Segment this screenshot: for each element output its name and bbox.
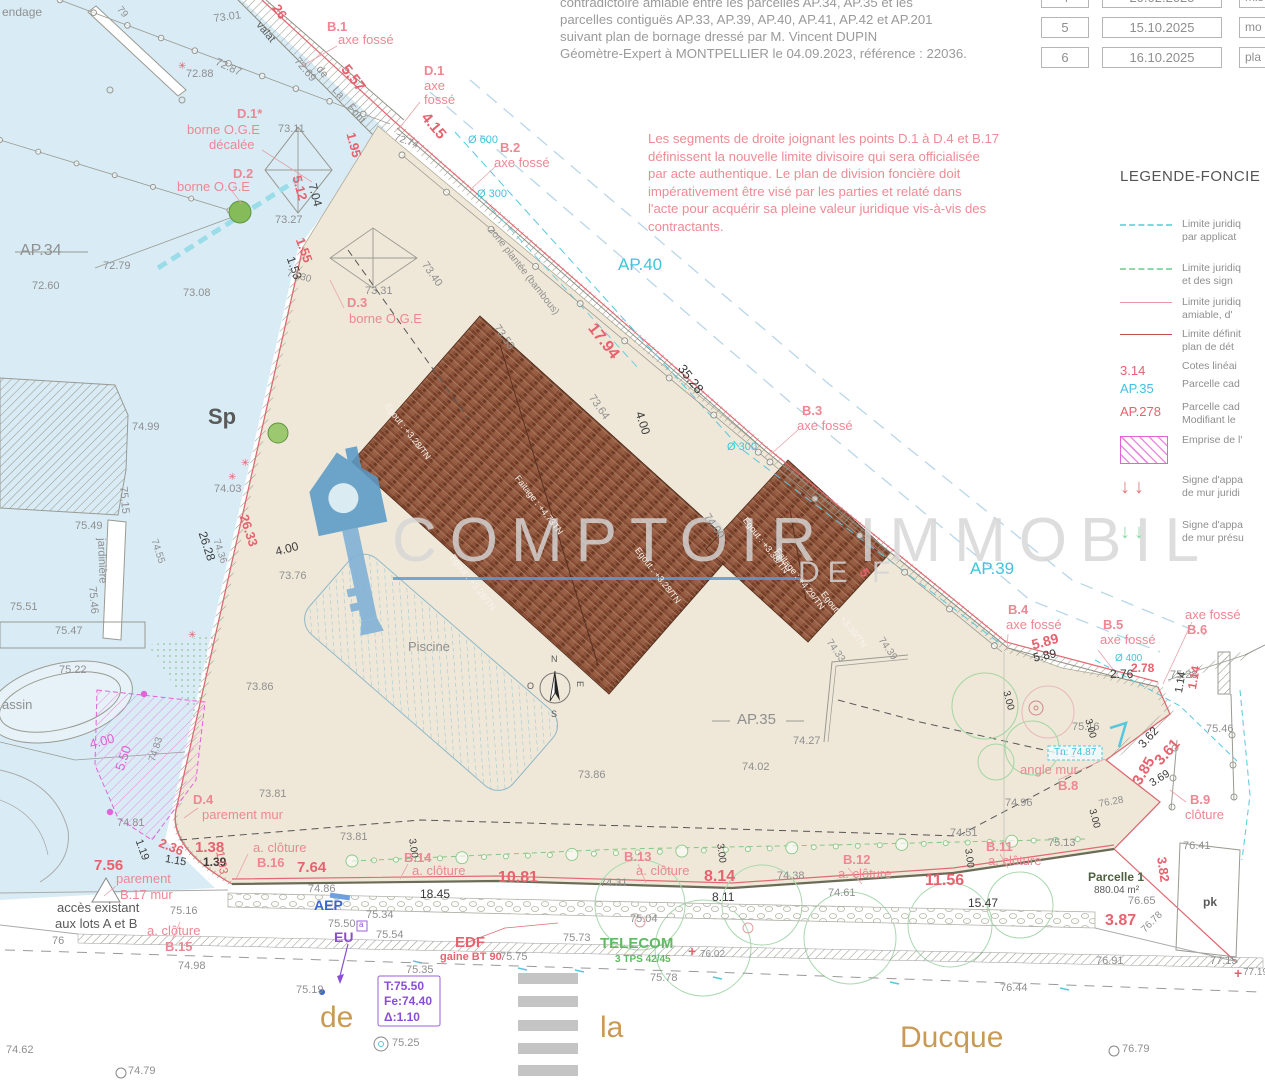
legend-entry: Emprise de l': [1120, 434, 1265, 464]
crosswalk: [518, 973, 578, 1076]
legend-text: Emprise de l': [1182, 434, 1242, 464]
legend-title: LEGENDE-FONCIE: [1120, 168, 1265, 185]
legend-entry: 3.14Cotes linéai: [1120, 360, 1265, 380]
survey-plan: COMPTOIR IMMOBIL DE F endage26B.1axe fos…: [0, 0, 1265, 1080]
legend-entry: Limite juridiq amiable, d': [1120, 296, 1265, 322]
revision-number: 5: [1041, 17, 1089, 38]
watermark-subtext: DE F: [798, 556, 898, 590]
revision-date: 16.10.2025: [1102, 47, 1222, 68]
revision-date: 15.10.2025: [1102, 17, 1222, 38]
legend-text: Signe d'appa de mur juridi: [1182, 474, 1243, 500]
legend-text: Cotes linéai: [1182, 360, 1237, 380]
revision-desc: mo: [1239, 17, 1265, 38]
revision-desc: mis: [1239, 0, 1265, 8]
revision-row: 616.10.2025pla: [1041, 47, 1265, 68]
legend-text: Parcelle cad: [1182, 378, 1240, 398]
legend-sample: AP.35: [1120, 378, 1182, 398]
bornage-note: contradictoire amiable entre les parcell…: [560, 0, 1040, 62]
revision-number: 6: [1041, 47, 1089, 68]
legend-sample: 3.14: [1120, 360, 1182, 380]
revision-row: 420.02.2025mis: [1041, 0, 1265, 8]
legend-text: Limite juridiq amiable, d': [1182, 296, 1241, 322]
legend-text: Signe d'appa de mur présu: [1182, 519, 1244, 545]
revision-desc: pla: [1239, 47, 1265, 68]
legend-entry: AP.278Parcelle cad Modifiant le: [1120, 401, 1265, 427]
legend-sample: AP.278: [1120, 401, 1182, 427]
watermark-underline: [393, 577, 800, 580]
legend-text: Parcelle cad Modifiant le: [1182, 401, 1240, 427]
revision-row: 515.10.2025mo: [1041, 17, 1265, 38]
legend-entry: Limite définit plan de dét: [1120, 328, 1265, 354]
legend-entry: ↓↓Signe d'appa de mur juridi: [1120, 474, 1265, 500]
legend-text: Limite juridiq et des sign: [1182, 262, 1241, 288]
legend-entry: ↓↓Signe d'appa de mur présu: [1120, 519, 1265, 545]
road: [0, 878, 1263, 992]
legend-sample: [1120, 434, 1182, 464]
legend-sample: [1120, 328, 1182, 354]
revision-date: 20.02.2025: [1102, 0, 1222, 8]
key-logo-icon: [298, 438, 418, 648]
legend-entry: Limite juridiq et des sign: [1120, 262, 1265, 288]
legend-sample: ↓↓: [1120, 519, 1182, 545]
legend: LEGENDE-FONCIE Limite juridiq par applic…: [1120, 168, 1265, 185]
division-note: Les segments de droite joignant les poin…: [648, 130, 1048, 235]
right-side: [1169, 645, 1265, 957]
legend-text: Limite définit plan de dét: [1182, 328, 1241, 354]
revision-number: 4: [1041, 0, 1089, 8]
legend-sample: [1120, 218, 1182, 244]
legend-entry: AP.35Parcelle cad: [1120, 378, 1265, 398]
legend-sample: ↓↓: [1120, 474, 1182, 500]
legend-text: Limite juridiq par applicat: [1182, 218, 1241, 244]
legend-sample: [1120, 262, 1182, 288]
legend-entry: Limite juridiq par applicat: [1120, 218, 1265, 244]
legend-sample: [1120, 296, 1182, 322]
